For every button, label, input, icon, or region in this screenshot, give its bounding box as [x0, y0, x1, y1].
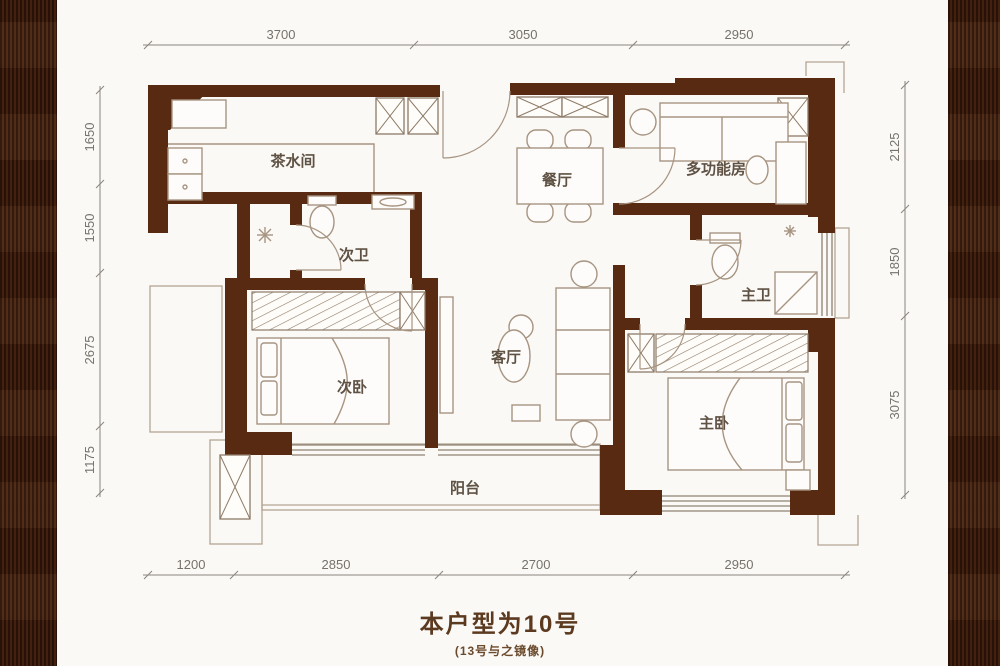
- dining-chair: [565, 202, 591, 222]
- plan-title-block: 本户型为10号 (13号与之镜像): [0, 604, 1000, 659]
- plan-subtitle: (13号与之镜像): [0, 642, 1000, 659]
- living-rug: [512, 405, 540, 421]
- room-label-living: 客厅: [490, 348, 521, 366]
- wardrobe-bedroom-master: [656, 334, 808, 372]
- sofa: [556, 288, 610, 420]
- pillow: [786, 424, 802, 462]
- dim-top-3: 2950: [725, 27, 754, 42]
- room-label-bedroom-master: 主卧: [699, 414, 729, 432]
- room-label-dining: 餐厅: [542, 171, 572, 189]
- dim-left-3: 2675: [82, 336, 97, 365]
- dim-bottom-4: 2950: [725, 557, 754, 572]
- entrance-door: [443, 91, 510, 158]
- nightstand: [786, 470, 810, 490]
- dim-right-1: 2125: [887, 133, 902, 162]
- sofa-side-table: [571, 421, 597, 447]
- shower-head-icon: [784, 225, 796, 237]
- dim-left-2: 1550: [82, 214, 97, 243]
- dim-bottom-3: 2700: [522, 557, 551, 572]
- dining-chair: [565, 130, 591, 150]
- wall-basin: [372, 195, 414, 209]
- dim-right-2: 1850: [887, 248, 902, 277]
- wardrobe-bedroom-second: [252, 292, 400, 330]
- dining-chair: [527, 130, 553, 150]
- dim-right-3: 3075: [887, 391, 902, 420]
- toilet-tank-m: [710, 233, 740, 243]
- floor-drain-icon: [257, 227, 273, 243]
- room-label-tea-room: 茶水间: [270, 152, 315, 170]
- room-label-bath-master: 主卫: [741, 286, 771, 304]
- pillow: [261, 343, 277, 377]
- dining-chair: [527, 202, 553, 222]
- room-label-bedroom-second: 次卧: [337, 378, 367, 396]
- dim-left-4: 1175: [82, 446, 97, 474]
- tea-sink-2: [168, 174, 202, 200]
- tea-cabinet: [172, 100, 226, 128]
- room-label-multi-function: 多功能房: [686, 160, 746, 178]
- tv-console: [440, 297, 453, 413]
- dim-top-2: 3050: [509, 27, 538, 42]
- side-table: [630, 109, 656, 135]
- plan-title: 本户型为10号: [0, 604, 1000, 639]
- tea-sink-1: [168, 148, 202, 174]
- room-label-bath-second: 次卫: [339, 246, 369, 264]
- pillow: [261, 381, 277, 415]
- pillow: [786, 382, 802, 420]
- dim-bottom-2: 2850: [322, 557, 351, 572]
- sofa-side-table: [571, 261, 597, 287]
- dim-left-1: 1650: [82, 123, 97, 152]
- bed-master: [668, 378, 804, 470]
- dim-bottom-1: 1200: [177, 557, 206, 572]
- desk: [776, 142, 806, 204]
- floor-plan-svg: 茶水间 餐厅 多功能房 次卫 主卫 次卧 客厅 主卧 阳台 3700 3050 …: [0, 0, 1000, 666]
- desk-chair: [746, 156, 768, 184]
- sofa-bed: [660, 103, 788, 161]
- room-label-balcony: 阳台: [450, 479, 480, 497]
- dim-top-1: 3700: [267, 27, 296, 42]
- toilet-tank-2: [308, 196, 336, 205]
